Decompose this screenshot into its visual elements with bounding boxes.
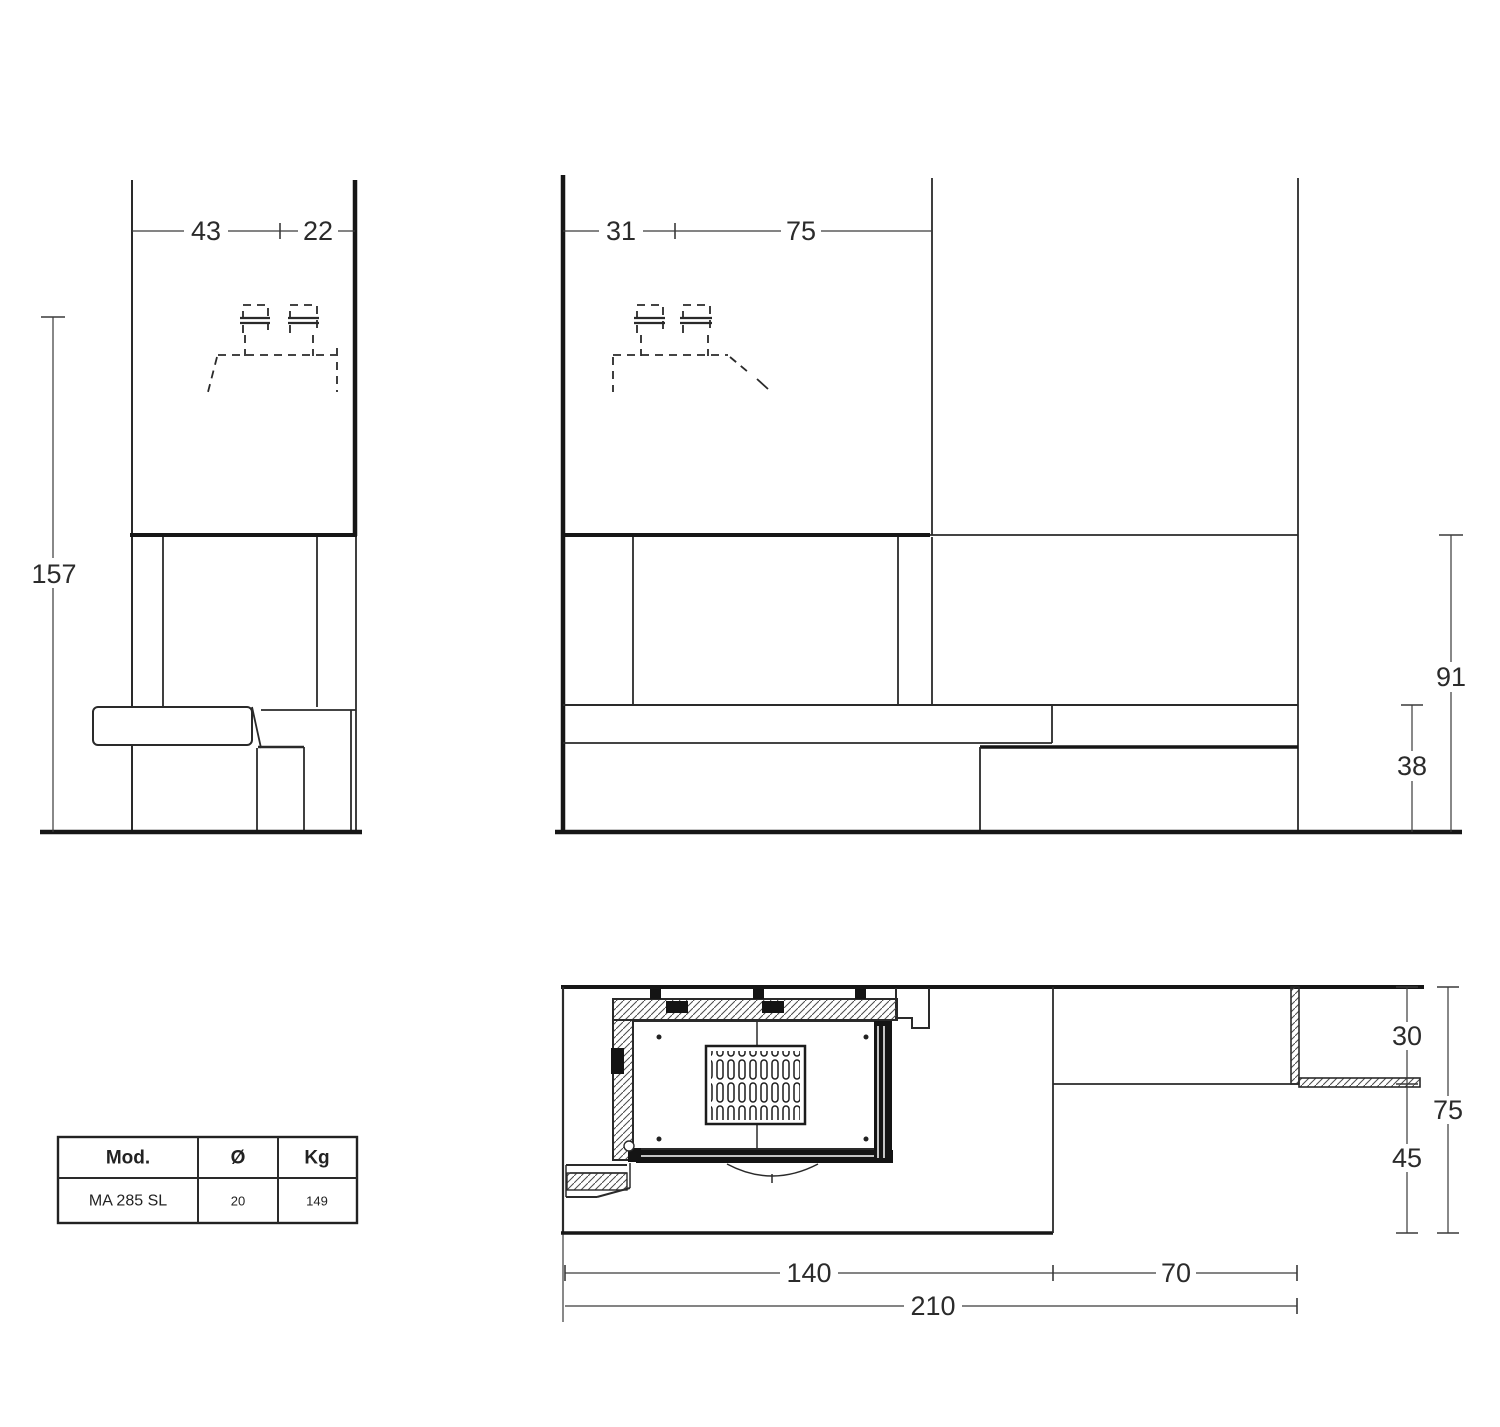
side-view-bench — [93, 707, 252, 745]
front-view-flue-dashed-outline — [613, 305, 768, 392]
table-header-model: Mod. — [106, 1148, 150, 1169]
plan-door-right — [874, 1021, 892, 1163]
plan-niche-right-wall — [896, 988, 929, 1028]
dim-label-side-front-width: 22 — [303, 216, 333, 246]
front-view-height-dimensions: 91 38 — [1391, 535, 1472, 832]
dim-label-side-total-height: 157 — [31, 559, 76, 589]
table-header-weight: Kg — [304, 1148, 329, 1169]
table-cell-weight: 149 — [306, 1194, 328, 1209]
plan-grate-slots — [711, 1051, 800, 1120]
dim-label-plan-total-width: 210 — [910, 1291, 955, 1321]
dim-label-plan-bench-width: 70 — [1161, 1258, 1191, 1288]
dim-label-plan-front-depth: 45 — [1392, 1143, 1422, 1173]
front-view-top-dimension: 31 75 — [563, 216, 932, 246]
spec-table: Mod. Ø Kg MA 285 SL 20 149 — [58, 1137, 357, 1223]
drawing-page: 43 22 157 — [0, 0, 1500, 1427]
plan-view: 30 45 75 140 70 210 — [561, 987, 1469, 1322]
side-view-top-dimension: 43 22 — [132, 216, 355, 246]
dim-label-plan-total-depth: 75 — [1433, 1095, 1463, 1125]
plan-depth-dimensions: 30 45 75 — [1386, 987, 1469, 1233]
technical-drawing: 43 22 157 — [0, 0, 1500, 1427]
front-view: 31 75 91 38 — [555, 175, 1472, 832]
plan-width-dimensions: 140 70 210 — [565, 1258, 1297, 1321]
dim-label-front-bench-height: 38 — [1397, 751, 1427, 781]
dim-label-plan-body-width: 140 — [786, 1258, 831, 1288]
plan-left-ledge — [566, 1163, 630, 1197]
side-view-flue-dashed-outline — [208, 305, 337, 392]
table-cell-model: MA 285 SL — [89, 1193, 167, 1210]
dim-label-front-opening-width: 75 — [786, 216, 816, 246]
side-view: 43 22 157 — [31, 180, 362, 832]
dim-label-front-hood-height: 91 — [1436, 662, 1466, 692]
dim-label-side-back-width: 43 — [191, 216, 221, 246]
dim-label-front-left-width: 31 — [606, 216, 636, 246]
dim-label-plan-wall-depth: 30 — [1392, 1021, 1422, 1051]
plan-firebox — [611, 989, 897, 1183]
table-header-diameter: Ø — [231, 1148, 246, 1169]
side-view-height-dimension: 157 — [31, 317, 77, 832]
table-cell-diameter: 20 — [231, 1194, 245, 1209]
